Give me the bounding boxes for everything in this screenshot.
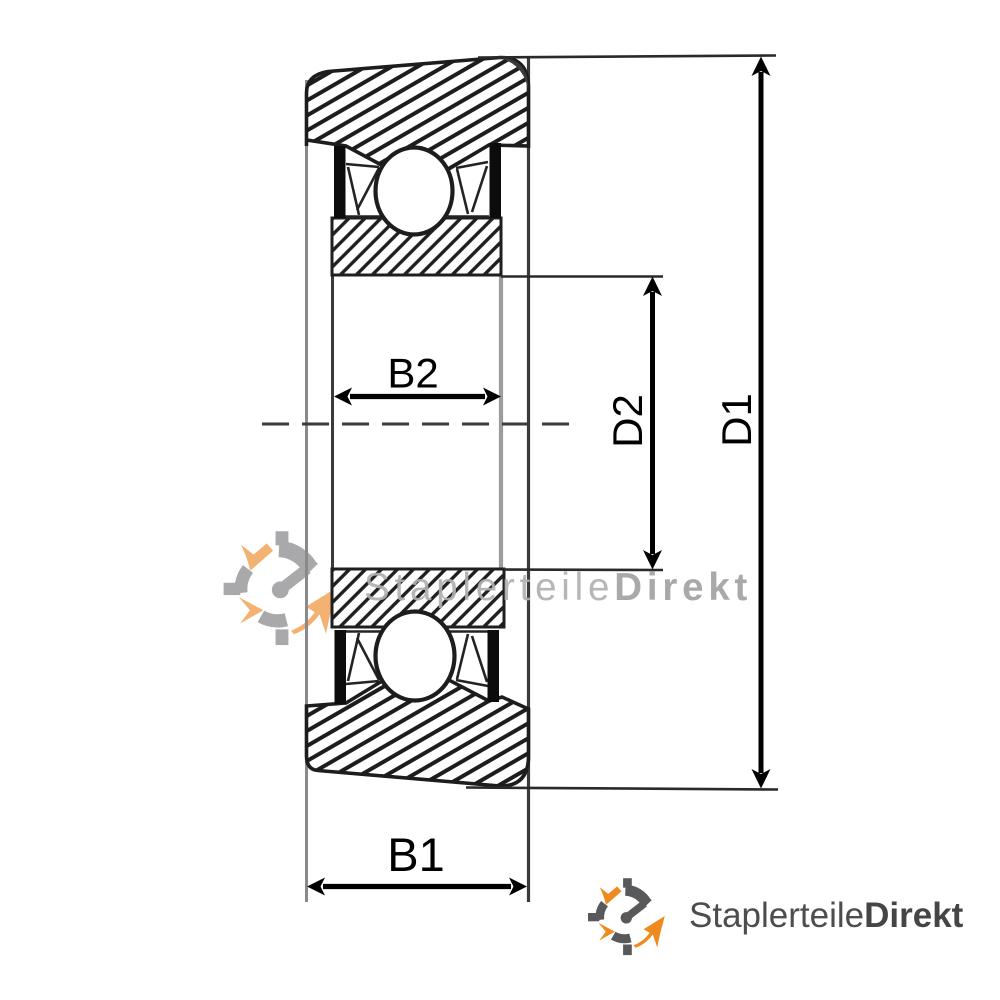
svg-text:B1: B1 (387, 828, 445, 881)
svg-text:D1: D1 (713, 393, 760, 447)
svg-text:StaplerteileDirekt: StaplerteileDirekt (364, 566, 752, 609)
svg-text:B2: B2 (387, 350, 438, 397)
svg-text:D2: D2 (604, 394, 651, 448)
svg-text:StaplerteileDirekt: StaplerteileDirekt (689, 896, 964, 935)
